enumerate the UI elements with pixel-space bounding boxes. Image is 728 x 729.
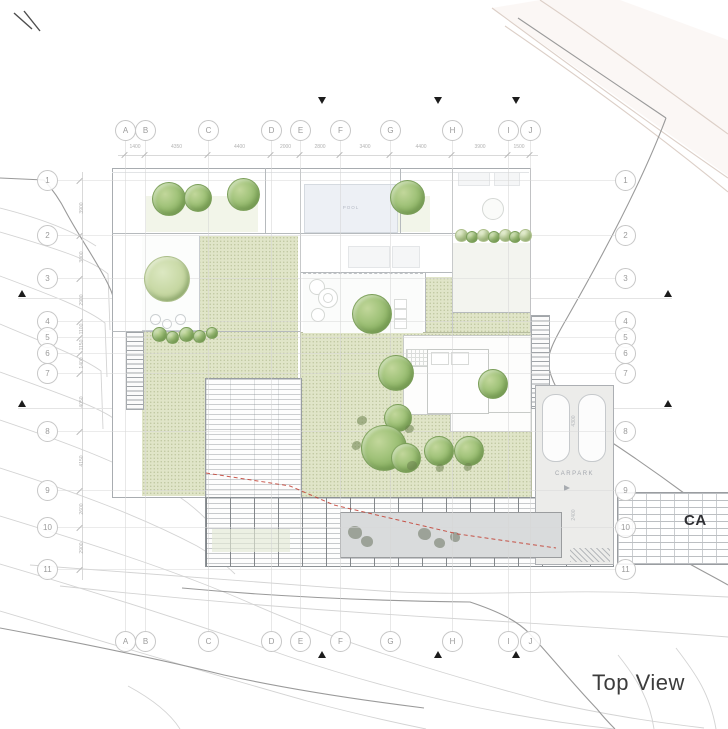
grid-row-bubble-left: 3 (37, 268, 58, 289)
section-marker-icon (512, 97, 520, 104)
grid-row-bubble-left: 7 (37, 363, 58, 384)
section-marker-icon (318, 97, 326, 104)
grid-row-bubble-left: 1 (37, 170, 58, 191)
grid-column-bubble-top: G (380, 120, 401, 141)
section-marker-icon (434, 651, 442, 658)
site-plan-stage: POOL (0, 0, 728, 729)
grid-row-bubble-left: 8 (37, 421, 58, 442)
grid-row-bubble-right: 2 (615, 225, 636, 246)
grid-column-bubble-top: H (442, 120, 463, 141)
grid-column-bubble-bottom: D (261, 631, 282, 652)
grid-column-bubble-top: D (261, 120, 282, 141)
grid-column-bubble-bottom: B (135, 631, 156, 652)
grid-row-bubble-right: 7 (615, 363, 636, 384)
grid-column-bubble-bottom: G (380, 631, 401, 652)
grid-row-bubble-left: 2 (37, 225, 58, 246)
section-marker-icon (318, 651, 326, 658)
red-dashed-line (206, 473, 556, 548)
grid-column-bubble-bottom: H (442, 631, 463, 652)
grid-column-bubble-top: F (330, 120, 351, 141)
reference-marker-icon (18, 400, 26, 407)
grid-row-bubble-left: 11 (37, 559, 58, 580)
grid-row-bubble-right: 6 (615, 343, 636, 364)
grid-column-bubble-bottom: E (290, 631, 311, 652)
grid-row-bubble-right: 9 (615, 480, 636, 501)
grid-column-bubble-bottom: C (198, 631, 219, 652)
grid-column-bubble-bottom: A (115, 631, 136, 652)
grid-column-bubble-top: I (498, 120, 519, 141)
section-marker-icon (434, 97, 442, 104)
grid-row-bubble-left: 10 (37, 517, 58, 538)
grid-column-bubble-top: E (290, 120, 311, 141)
grid-row-bubble-right: 11 (615, 559, 636, 580)
grid-column-bubble-top: J (520, 120, 541, 141)
grid-row-bubble-left: 9 (37, 480, 58, 501)
grid-column-bubble-bottom: F (330, 631, 351, 652)
grid-column-bubble-top: C (198, 120, 219, 141)
grid-column-bubble-bottom: I (498, 631, 519, 652)
grid-row-bubble-right: 1 (615, 170, 636, 191)
grid-column-bubble-bottom: J (520, 631, 541, 652)
section-marker-icon (512, 651, 520, 658)
drawing-title: Top View (592, 670, 685, 696)
grid-row-bubble-right: 10 (615, 517, 636, 538)
grid-column-bubble-top: A (115, 120, 136, 141)
grid-row-bubble-right: 3 (615, 268, 636, 289)
reference-marker-icon (664, 290, 672, 297)
reference-marker-icon (18, 290, 26, 297)
grid-row-bubble-left: 6 (37, 343, 58, 364)
reference-marker-icon (664, 400, 672, 407)
grid-row-bubble-right: 8 (615, 421, 636, 442)
grid-column-bubble-top: B (135, 120, 156, 141)
